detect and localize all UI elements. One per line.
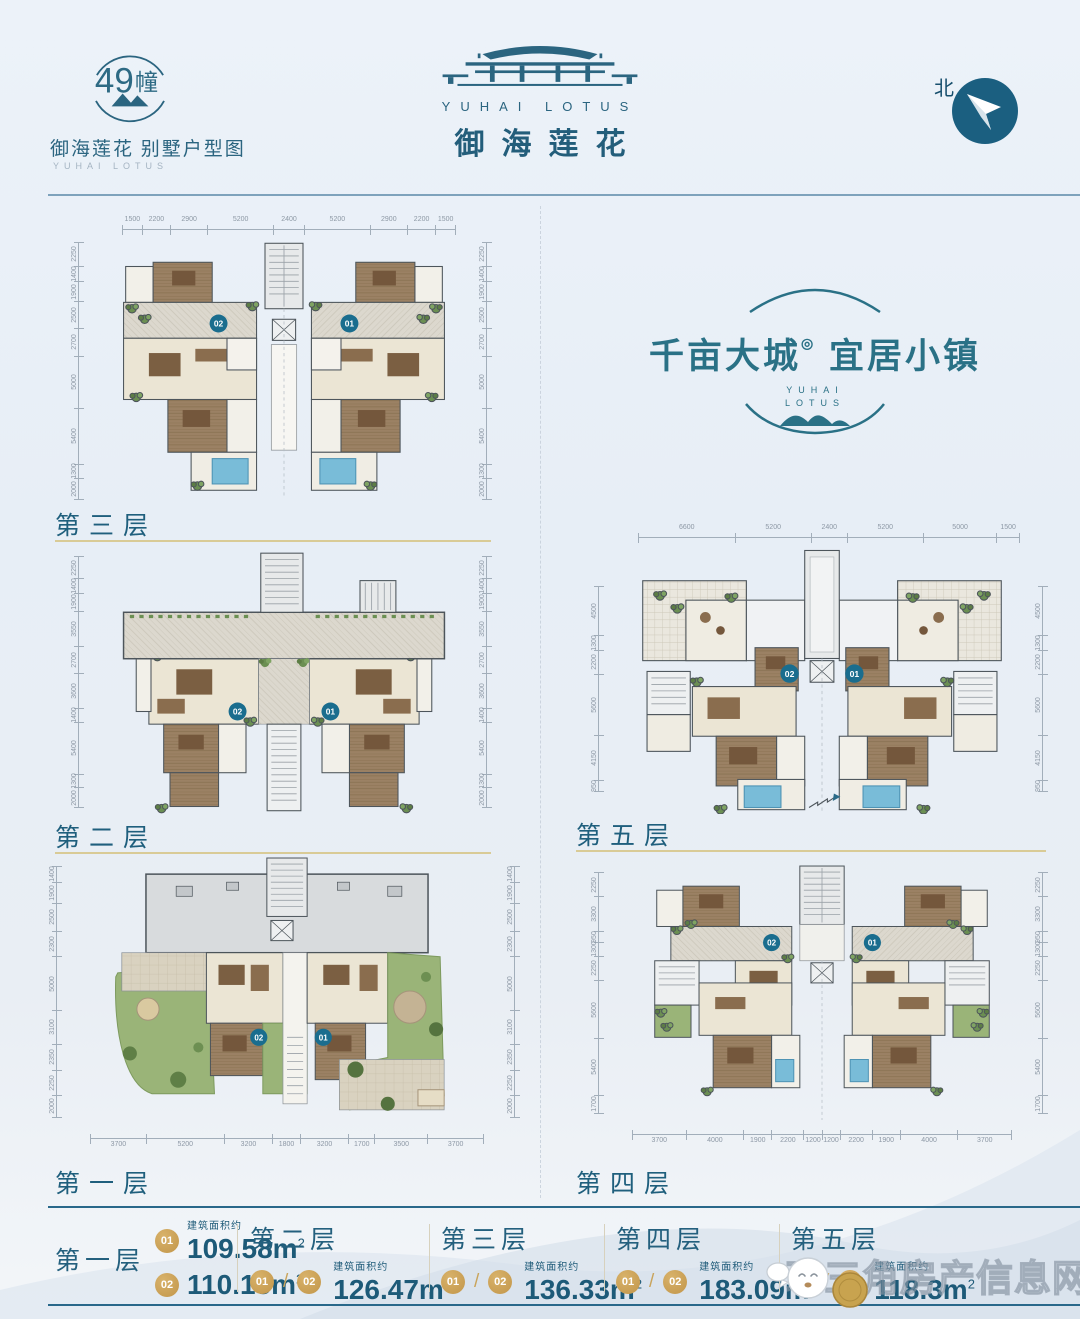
floorplan-floor1: 140019002500230050003100235022502000 140… [40,852,520,1164]
unit-02-circle: 02 [155,1273,179,1297]
floorplan-floor2: 2250140019003550270036001400540013002000… [62,544,492,820]
unit-badge-01: 01 [845,664,863,682]
slogan-text: 千亩大城◎ 宜居小镇 [642,328,988,379]
floor4-drawing: 02 01 [614,862,1030,1124]
area-label: 建筑面积约 [333,1258,451,1273]
mascot-sticker [764,1250,874,1312]
floor1-bottom-ruler: 37005200320018003200170035003700 [90,1134,484,1144]
legend-floor4: 第四层 01/02 建筑面积约 183.09m2 [616,1220,786,1298]
unit-01-circle: 01 [155,1229,179,1253]
unit-badge-02: 02 [763,934,780,951]
floor2-left-ruler: 2250140019003550270036001400540013002000 [74,556,84,808]
unit-02-circle: 02 [297,1270,321,1294]
unit-badge-02: 02 [780,664,798,682]
center-guide-line [540,206,541,1198]
slogan-sub-en: YUHAILOTUS [642,384,988,410]
svg-text:01: 01 [319,1033,328,1042]
legend-floor2-label: 第二层 [250,1220,426,1256]
slogan-medallion: 千亩大城◎ 宜居小镇 YUHAILOTUS [642,266,988,446]
floor1-label: 第一层 [55,1164,157,1200]
unit-02-circle: 02 [663,1270,687,1294]
area-value: 126.47m2 [333,1274,451,1305]
floor4-label: 第四层 [576,1164,678,1200]
legend-divider [429,1224,430,1292]
floor4-bottom-ruler: 3700400019002200120012002200190040003700 [632,1130,1012,1140]
badge-number: 49 [95,62,134,101]
svg-text:02: 02 [767,939,776,948]
unit-badge-01: 01 [321,703,339,721]
unit-badge-02: 02 [229,703,247,721]
svg-text:02: 02 [233,707,243,717]
unit-badge-02: 02 [250,1029,267,1046]
badge-unit: 幢 [135,70,158,95]
floor2-right-ruler: 2250140019003550270036001400540013002000 [482,556,492,808]
legend-divider [237,1224,238,1292]
legend-floor4-label: 第四层 [616,1220,786,1256]
brand-name-en: YUHAI LOTUS [370,99,710,114]
unit-01-circle: 01 [616,1270,640,1294]
pavilion-icon [425,38,655,96]
legend-floor1-label: 第一层 [55,1241,145,1277]
unit-01-circle: 01 [441,1270,465,1294]
floor3-left-ruler: 225014001900250027005000540013002000 [74,242,84,500]
svg-text:01: 01 [850,669,860,679]
legend-floor3: 第三层 01/02 建筑面积约 136.33m2 [441,1220,609,1298]
svg-text:02: 02 [214,319,224,329]
floor5-top-ruler: 660052002400520050001500 [638,533,1020,543]
unit-02-circle: 02 [488,1270,512,1294]
floorplan-floor5: 660052002400520050001500 450013002200560… [582,524,1048,816]
unit-badge-01: 01 [340,315,358,333]
svg-text:01: 01 [345,319,355,329]
floor5-right-ruler: 45001300220056004150950 [1038,586,1048,792]
floor3-top-ruler: 150022002900520024005200290022001500 [122,225,456,235]
floor2-label: 第二层 [55,818,157,854]
legend-floor1: 第一层 01 建筑面积约 109.58m2 02 110.15m2 [55,1220,235,1298]
legend-floor3-label: 第三层 [441,1220,609,1256]
floor3-underline [55,540,491,542]
floor3-right-ruler: 225014001900250027005000540013002000 [482,242,492,500]
floor5-label: 第五层 [576,816,678,852]
svg-text:01: 01 [326,707,336,717]
north-arrow-icon [950,76,1020,146]
floor4-left-ruler: 2250330095013002250560054001700 [594,872,604,1114]
north-compass: 北 [934,68,1024,148]
floor5-drawing: 02 01 [614,544,1030,814]
floor3-drawing: 02 01 [94,236,474,506]
floor4-right-ruler: 2250330095013002250560054001700 [1038,872,1048,1114]
svg-text:02: 02 [785,669,795,679]
slash: / [283,1271,288,1293]
floor2-drawing: 02 01 [94,548,474,818]
floor5-left-ruler: 45001300220056004150950 [594,586,604,792]
legend-divider [604,1224,605,1292]
svg-text:01: 01 [868,939,877,948]
floor1-drawing: 02 01 [72,856,502,1128]
unit-badge-02: 02 [210,315,228,333]
floor5-underline [576,850,1046,852]
badge-subtitle: 御海莲花 别墅户型图 [50,134,270,161]
header-divider [48,194,1080,196]
slash: / [474,1271,479,1293]
badge-subtitle-en: YUHAI LOTUS [53,161,168,171]
floor1-left-ruler: 140019002500230050003100235022502000 [52,866,62,1118]
floorplan-floor4: 2250330095013002250560054001700 22503300… [582,858,1048,1158]
floor3-label: 第三层 [55,506,157,542]
slash: / [649,1271,654,1293]
floorplan-floor3: 150022002900520024005200290022001500 225… [62,216,492,508]
svg-text:02: 02 [254,1033,263,1042]
brand-name-cn: 御海莲花 [370,119,710,163]
brand-logo: YUHAI LOTUS 御海莲花 [370,38,710,163]
floor1-right-ruler: 140019002500230050003100235022502000 [510,866,520,1118]
unit-badge-01: 01 [864,934,881,951]
legend-floor2: 第二层 01/02 建筑面积约 126.47m2 [250,1220,426,1298]
unit-badge-01: 01 [315,1029,332,1046]
unit-01-circle: 01 [250,1270,274,1294]
building-49-badge: 49 幢 [84,42,176,134]
legend-top-rule [48,1206,1080,1208]
